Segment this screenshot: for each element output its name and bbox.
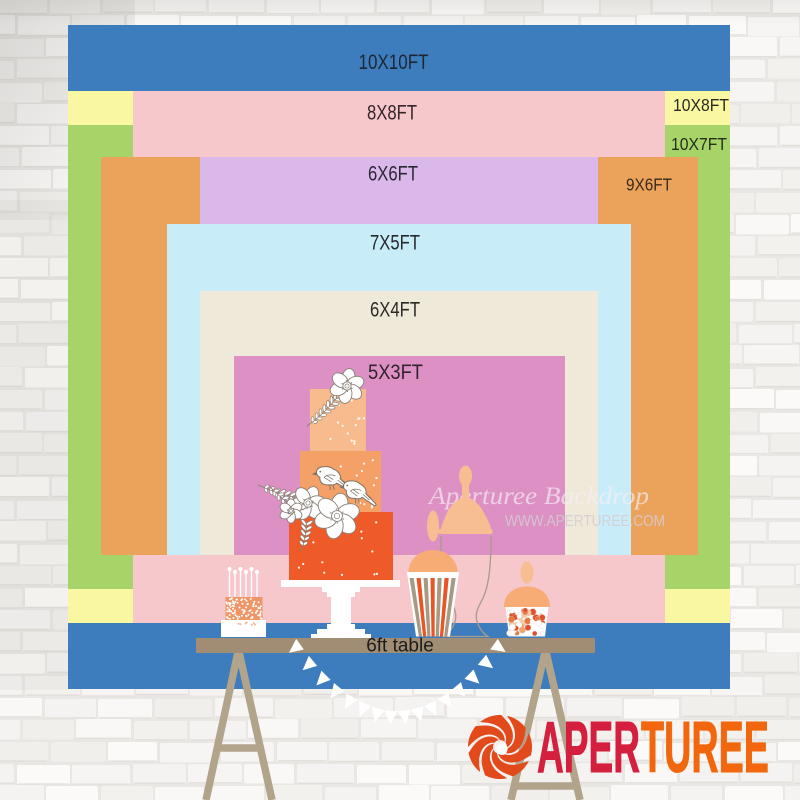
svg-text:8X8FT: 8X8FT [367, 102, 417, 125]
svg-text:6ft table: 6ft table [366, 636, 434, 657]
svg-text:TUREE: TUREE [641, 708, 769, 788]
svg-text:9X6FT: 9X6FT [626, 175, 672, 195]
svg-text:10X10FT: 10X10FT [359, 51, 429, 74]
svg-text:6X4FT: 6X4FT [370, 299, 420, 322]
svg-text:10X7FT: 10X7FT [671, 134, 727, 154]
svg-text:APER: APER [537, 708, 640, 788]
svg-text:6X6FT: 6X6FT [368, 163, 418, 186]
svg-text:WWW.APERTUREE.COM: WWW.APERTUREE.COM [505, 513, 665, 530]
svg-text:5X3FT: 5X3FT [368, 361, 423, 384]
svg-text:7X5FT: 7X5FT [370, 232, 420, 255]
svg-text:10X8FT: 10X8FT [673, 95, 729, 115]
